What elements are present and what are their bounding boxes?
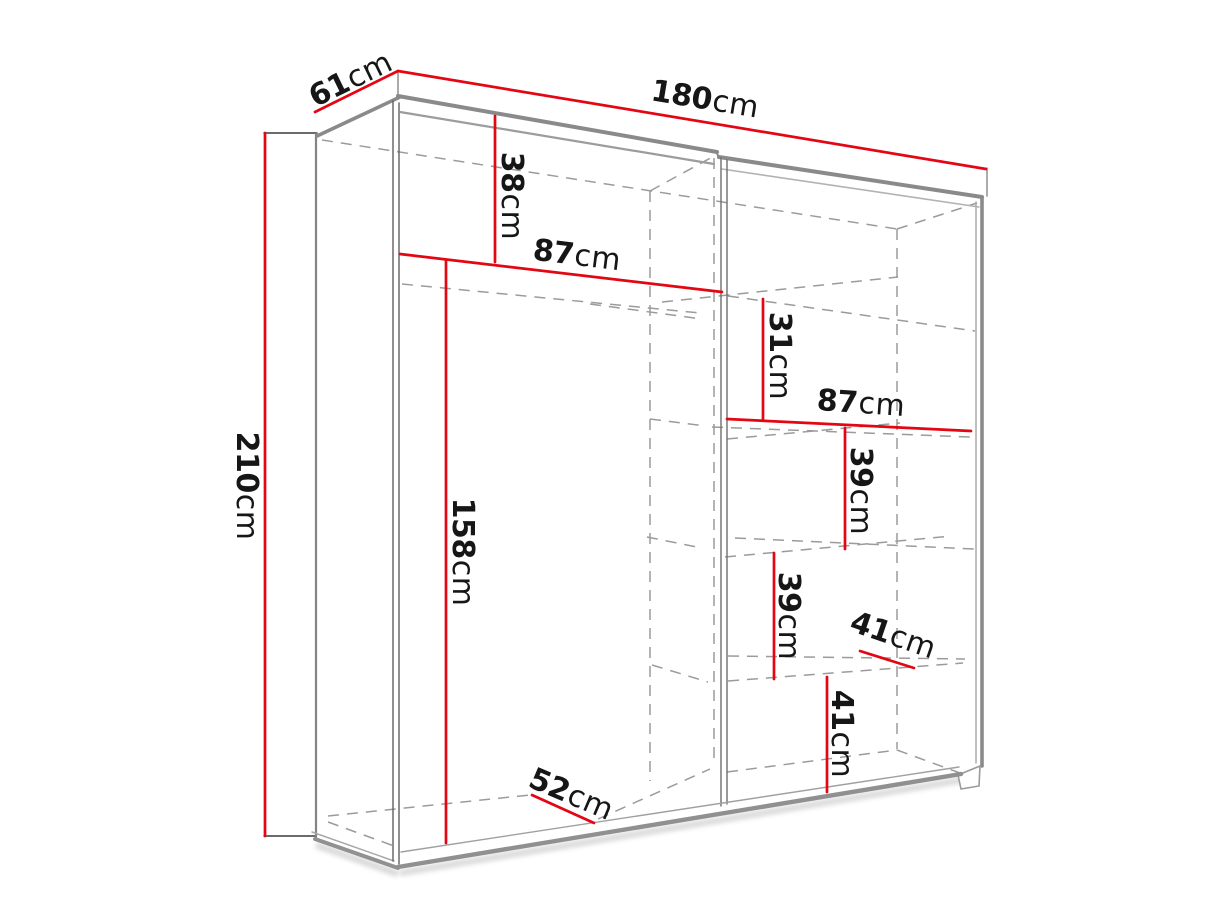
dim-label-right-section-width: 87cm [816, 386, 906, 422]
left-door-top-edge [400, 112, 714, 164]
wardrobe-dimension-diagram: 61cm 180cm 210cm 38cm 87cm 158cm 31cm 87… [0, 0, 1231, 923]
right-door-top-edge [722, 169, 979, 207]
right-foot [958, 766, 980, 789]
dim-label-height-total: 210cm [231, 432, 261, 541]
dim-label-top-section-height: 38cm [496, 152, 526, 240]
carcass-edges [264, 71, 987, 868]
dim-line-87-right [727, 419, 971, 431]
door-bottom-edge [401, 767, 959, 852]
dim-label-right-top-gap: 31cm [764, 312, 794, 400]
wardrobe-line-drawing [0, 0, 1231, 923]
bottom-front-edge [398, 774, 961, 867]
dim-label-right-shelf-gap-upper: 39cm [845, 447, 875, 535]
dim-label-right-bottom-gap: 41cm [826, 690, 856, 778]
dim-label-right-shelf-gap-lower: 39cm [773, 572, 803, 660]
hidden-interior-edges [322, 140, 977, 846]
dim-label-left-section-height: 158cm [447, 498, 477, 607]
